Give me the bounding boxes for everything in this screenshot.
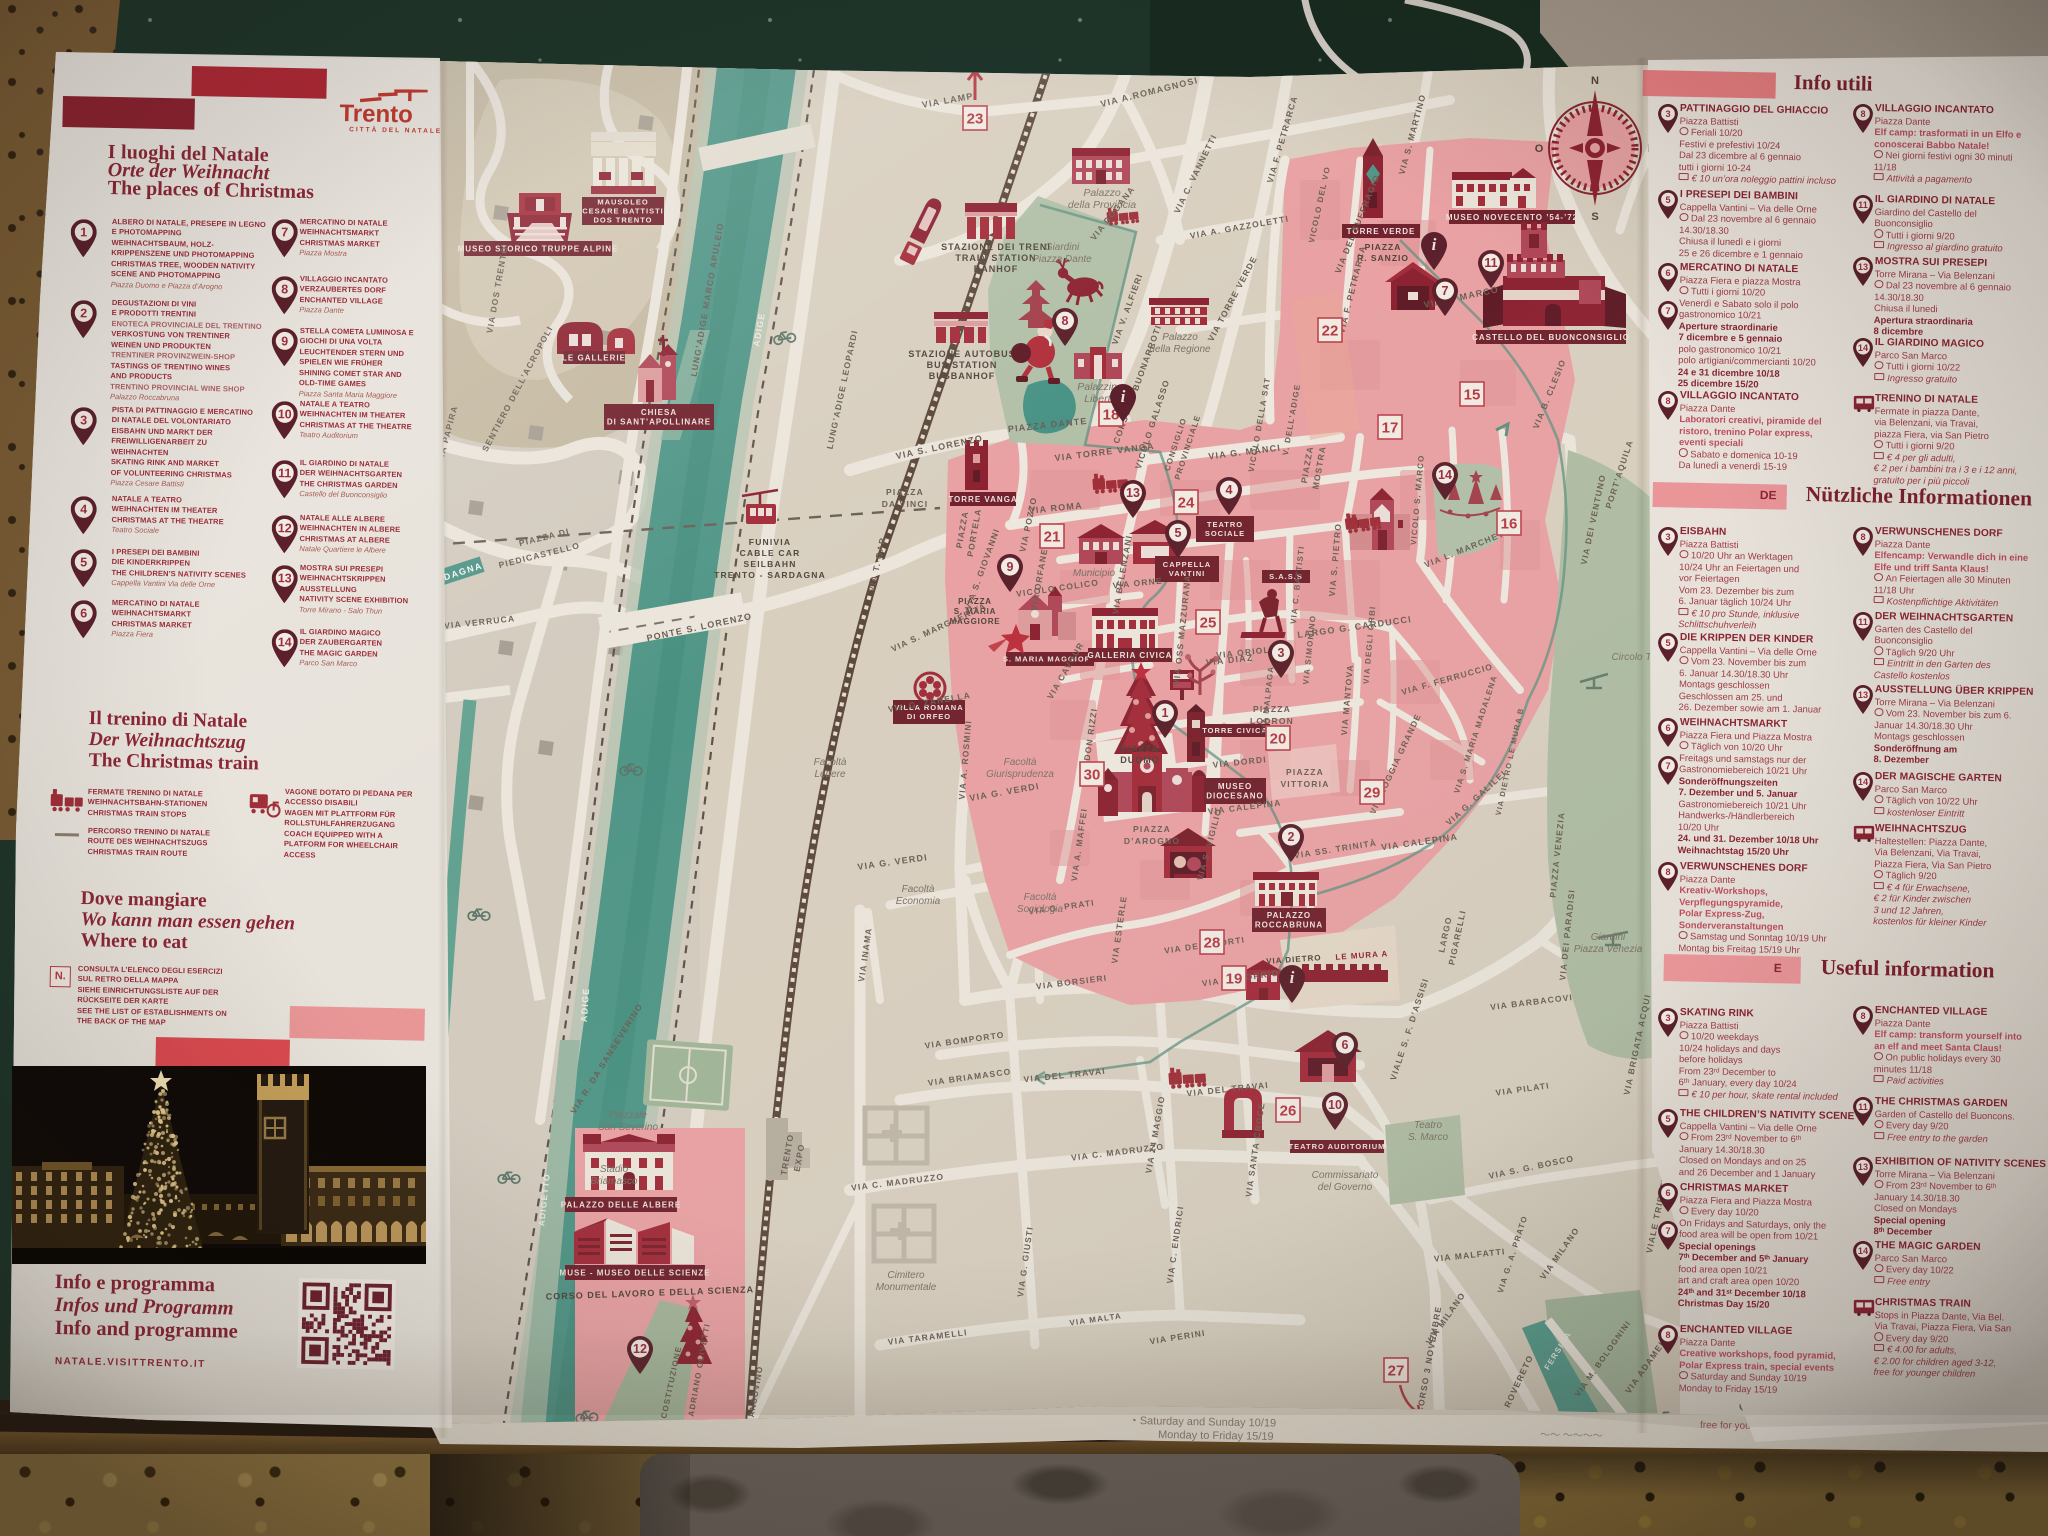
svg-text:5: 5 xyxy=(1665,638,1670,648)
svg-text:7: 7 xyxy=(1665,306,1670,316)
svg-text:8: 8 xyxy=(1860,1011,1865,1021)
svg-text:6: 6 xyxy=(80,606,87,620)
svg-text:1: 1 xyxy=(80,225,87,239)
svg-text:7: 7 xyxy=(281,225,288,239)
svg-text:14: 14 xyxy=(1858,343,1869,353)
svg-text:◔ Saturday and Sunday 10/19: ◔ Saturday and Sunday 10/19 xyxy=(1130,1415,1276,1430)
svg-text:11: 11 xyxy=(1858,200,1868,210)
svg-text:3: 3 xyxy=(80,413,87,427)
svg-text:7: 7 xyxy=(1665,1226,1670,1236)
svg-text:13: 13 xyxy=(1858,690,1868,700)
svg-text:7: 7 xyxy=(1665,761,1670,771)
svg-text:3: 3 xyxy=(1665,532,1670,542)
svg-text:5: 5 xyxy=(80,555,87,569)
svg-text:5: 5 xyxy=(1665,195,1670,205)
svg-text:8: 8 xyxy=(281,282,288,296)
svg-text:Monday to Friday 15/19: Monday to Friday 15/19 xyxy=(1158,1429,1274,1443)
svg-text:3: 3 xyxy=(1665,109,1670,119)
svg-text:Trento: Trento xyxy=(339,100,413,128)
svg-text:13: 13 xyxy=(278,571,292,585)
svg-text:12: 12 xyxy=(278,521,292,535)
svg-text:〜〜 〜〜〜〜: 〜〜 〜〜〜〜 xyxy=(1540,1430,1603,1442)
svg-text:6: 6 xyxy=(1665,723,1670,733)
svg-text:10: 10 xyxy=(278,407,292,421)
svg-text:9: 9 xyxy=(281,334,288,348)
svg-text:13: 13 xyxy=(1858,262,1868,272)
svg-text:6: 6 xyxy=(1665,1188,1670,1198)
svg-text:4: 4 xyxy=(80,502,87,516)
svg-text:11: 11 xyxy=(278,466,292,480)
svg-text:2: 2 xyxy=(80,306,87,320)
svg-text:14: 14 xyxy=(1858,1246,1869,1256)
svg-text:6: 6 xyxy=(1665,268,1670,278)
svg-text:14: 14 xyxy=(278,635,292,649)
svg-text:3: 3 xyxy=(1665,1013,1670,1023)
svg-text:14: 14 xyxy=(1858,777,1869,787)
svg-text:8: 8 xyxy=(1860,109,1865,119)
svg-text:11: 11 xyxy=(1858,1102,1868,1112)
svg-text:5: 5 xyxy=(1665,1114,1670,1124)
svg-text:8: 8 xyxy=(1860,532,1865,542)
svg-text:13: 13 xyxy=(1858,1162,1868,1172)
svg-text:8: 8 xyxy=(1665,396,1670,406)
svg-text:11: 11 xyxy=(1858,617,1868,627)
svg-text:8: 8 xyxy=(1665,867,1670,877)
